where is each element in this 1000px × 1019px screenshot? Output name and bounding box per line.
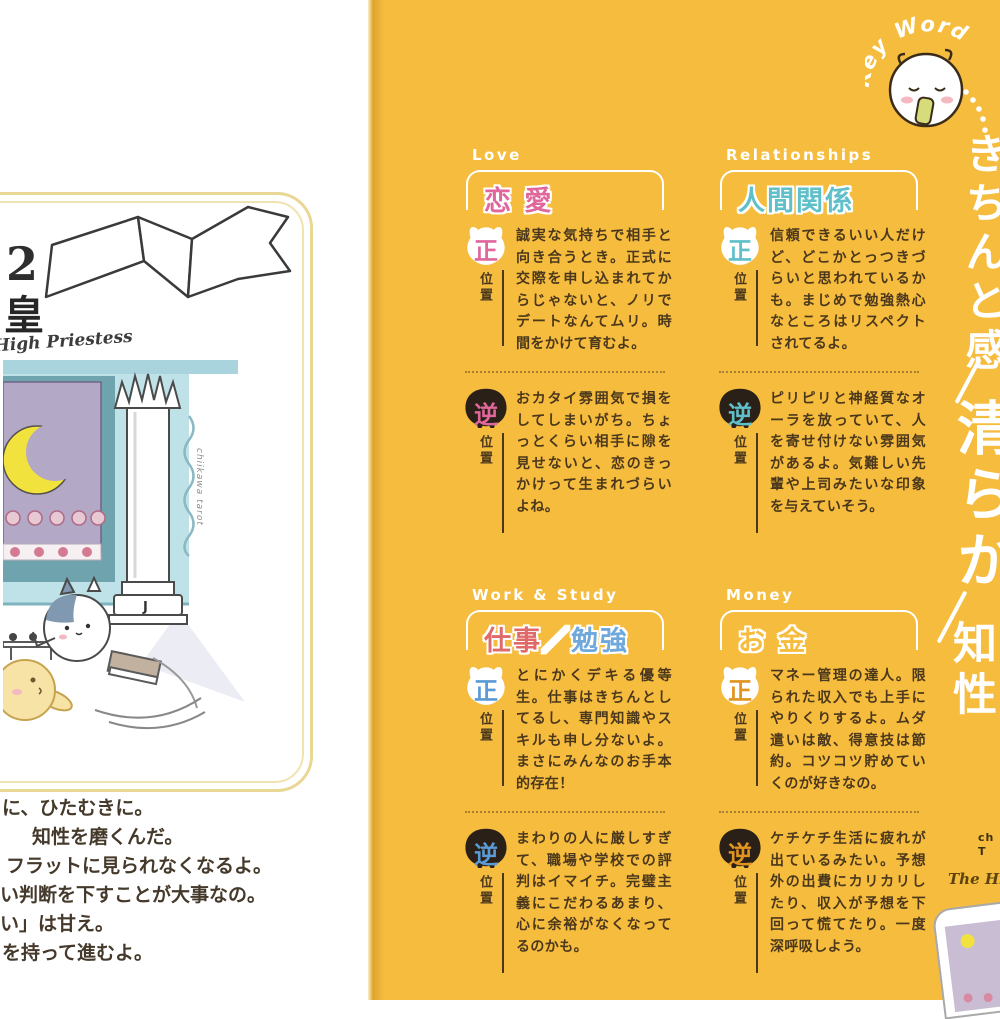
position-label: 位置 [729, 875, 748, 907]
upright-block: 正 位置 誠実な気持ちで相手と向き合うとき。正式に交際を申し込まれてからじゃない… [462, 224, 674, 355]
upright-text: 信頼できるいい人だけど、どこかとっつきづらいと思われているかも。まじめで勉強熱心… [770, 226, 926, 355]
section-love: Love 恋 愛 正 位置 誠実な気持ちで相手と向き合うとき。正式に交際を申し込… [462, 146, 674, 518]
reversed-text: ピリピリと神経質なオーラを放っていて、人を寄せ付けない雰囲気があるよ。気難しい先… [770, 389, 926, 518]
keyword-2: 清らか [952, 398, 1000, 596]
section-relationships: Relationships 人間関係 正 位置 信頼できるいい人だけど、どこかと… [716, 146, 928, 518]
reversed-char: 逆 [716, 835, 764, 870]
tarot-card: 2 女教皇 The High Priestess [0, 192, 313, 792]
reversed-badge: 逆 [462, 387, 510, 429]
position-label: 位置 [475, 435, 494, 467]
chiikawa-mascot-icon [890, 50, 962, 126]
upright-text: とにかくデキる優等生。仕事はきちんとしてるし、専門知識やスキルも申し分ないよ。ま… [516, 666, 672, 795]
description-line: フラットに見られなくなるよ。 [6, 852, 370, 881]
corner-brand-text: ch T [978, 831, 994, 859]
reversed-block: 逆 位置 まわりの人に厳しすぎて、職場や学校での評判はイマイチ。完璧主義にこだわ… [462, 827, 674, 958]
reversed-block: 逆 位置 ケチケチ生活に疲れが出ているみたい。予想外の出費にカリカリしたり、収入… [716, 827, 928, 958]
artist-credit: chiikawa tarot [194, 448, 204, 526]
section-en-label: Love [472, 146, 674, 164]
reversed-badge: 逆 [716, 827, 764, 869]
reversed-char: 逆 [462, 835, 510, 870]
right-page: Key Word きちんと感 清らか 知性 Love 恋 愛 [368, 0, 1000, 1000]
upright-badge: 正 [462, 224, 510, 266]
description-line: い」は甘え。 [0, 910, 370, 939]
corner-card-caption: The High Priestess [948, 870, 1000, 888]
section-jp-title: 人間関係 [738, 186, 854, 217]
reversed-char: 逆 [462, 395, 510, 430]
upright-char: 正 [462, 671, 510, 706]
dotted-trail [963, 89, 988, 133]
section-bracket: 恋 愛 [466, 170, 664, 210]
mini-card-art [945, 919, 1000, 1012]
reversed-badge: 逆 [716, 387, 764, 429]
section-en-label: Work & Study [472, 586, 674, 604]
section-en-label: Relationships [726, 146, 928, 164]
divider-line [502, 873, 504, 973]
position-label: 位置 [475, 272, 494, 304]
position-label: 位置 [729, 272, 748, 304]
upright-char: 正 [716, 231, 764, 266]
reversed-text: まわりの人に厳しすぎて、職場や学校での評判はイマイチ。完璧主義にこだわるあまり、… [516, 829, 672, 958]
keyword-1: きちんと感 [962, 132, 1000, 377]
reversed-badge: 逆 [462, 827, 510, 869]
upright-badge: 正 [716, 224, 764, 266]
upright-char: 正 [716, 671, 764, 706]
left-page: 2 女教皇 The High Priestess [0, 0, 368, 1000]
section-bracket: お 金 [720, 610, 918, 650]
divider-line [502, 710, 504, 786]
divider-line [756, 873, 758, 973]
dotted-separator [465, 371, 665, 373]
position-label: 位置 [475, 875, 494, 907]
dotted-separator [465, 811, 665, 813]
position-label: 位置 [729, 712, 748, 744]
upright-char: 正 [462, 231, 510, 266]
upright-block: 正 位置 マネー管理の達人。限られた収入でも上手にやりくりするよ。ムダ遣いは敵、… [716, 664, 928, 795]
next-card-preview [932, 901, 1000, 1019]
reversed-block: 逆 位置 ピリピリと神経質なオーラを放っていて、人を寄せ付けない雰囲気があるよ。… [716, 387, 928, 518]
section-work-study: Work & Study 仕事／勉強 正 位置 とにかくデキる優等生。仕事はきち… [462, 586, 674, 958]
reversed-char: 逆 [716, 395, 764, 430]
divider-line [756, 270, 758, 346]
position-label: 位置 [729, 435, 748, 467]
keyword-3: 知性 [948, 620, 992, 722]
description-line: に、ひたむきに。 [2, 794, 370, 823]
upright-text: マネー管理の達人。限られた収入でも上手にやりくりするよ。ムダ遣いは敵、得意技は節… [770, 666, 926, 795]
upright-block: 正 位置 信頼できるいい人だけど、どこかとっつきづらいと思われているかも。まじめ… [716, 224, 928, 355]
reversed-text: おカタイ雰囲気で損をしてしまいがち。ちょっとくらい相手に隙を見せないと、恋のきっ… [516, 389, 672, 518]
upright-block: 正 位置 とにかくデキる優等生。仕事はきちんとしてるし、専門知識やスキルも申し分… [462, 664, 674, 795]
divider-line [756, 433, 758, 533]
upright-text: 誠実な気持ちで相手と向き合うとき。正式に交際を申し込まれてからじゃないと、ノリで… [516, 226, 672, 355]
position-label: 位置 [475, 712, 494, 744]
description-line: を持って進むよ。 [2, 939, 370, 968]
section-jp-title: お 金 [738, 626, 807, 657]
section-en-label: Money [726, 586, 928, 604]
description-line: 知性を磨くんだ。 [32, 823, 370, 852]
description-line: い判断を下すことが大事なの。 [0, 881, 370, 910]
section-bracket: 人間関係 [720, 170, 918, 210]
section-jp-title: 仕事／勉強 [484, 626, 629, 657]
reversed-text: ケチケチ生活に疲れが出ているみたい。予想外の出費にカリカリしたり、収入が予想を下… [770, 829, 926, 958]
card-description-text: に、ひたむきに。 知性を磨くんだ。 フラットに見られなくなるよ。 い判断を下すこ… [0, 794, 370, 968]
ribbon-banner-illustration [40, 199, 296, 349]
high-priestess-scene-illustration: J chiikawa tarot [3, 360, 253, 732]
upright-badge: 正 [462, 664, 510, 706]
upright-badge: 正 [716, 664, 764, 706]
mini-moon-icon [960, 933, 976, 949]
divider-line [502, 433, 504, 533]
section-bracket: 仕事／勉強 [466, 610, 664, 650]
column-letter: J [142, 600, 148, 615]
divider-line [502, 270, 504, 346]
section-money: Money お 金 正 位置 マネー管理の達人。限られた収入でも上手にやりくりす… [716, 586, 928, 958]
reversed-block: 逆 位置 おカタイ雰囲気で損をしてしまいがち。ちょっとくらい相手に隙を見せないと… [462, 387, 674, 518]
rabbit-character [3, 660, 75, 720]
dotted-separator [719, 371, 919, 373]
dotted-separator [719, 811, 919, 813]
section-jp-title: 恋 愛 [484, 186, 553, 217]
divider-line [756, 710, 758, 786]
